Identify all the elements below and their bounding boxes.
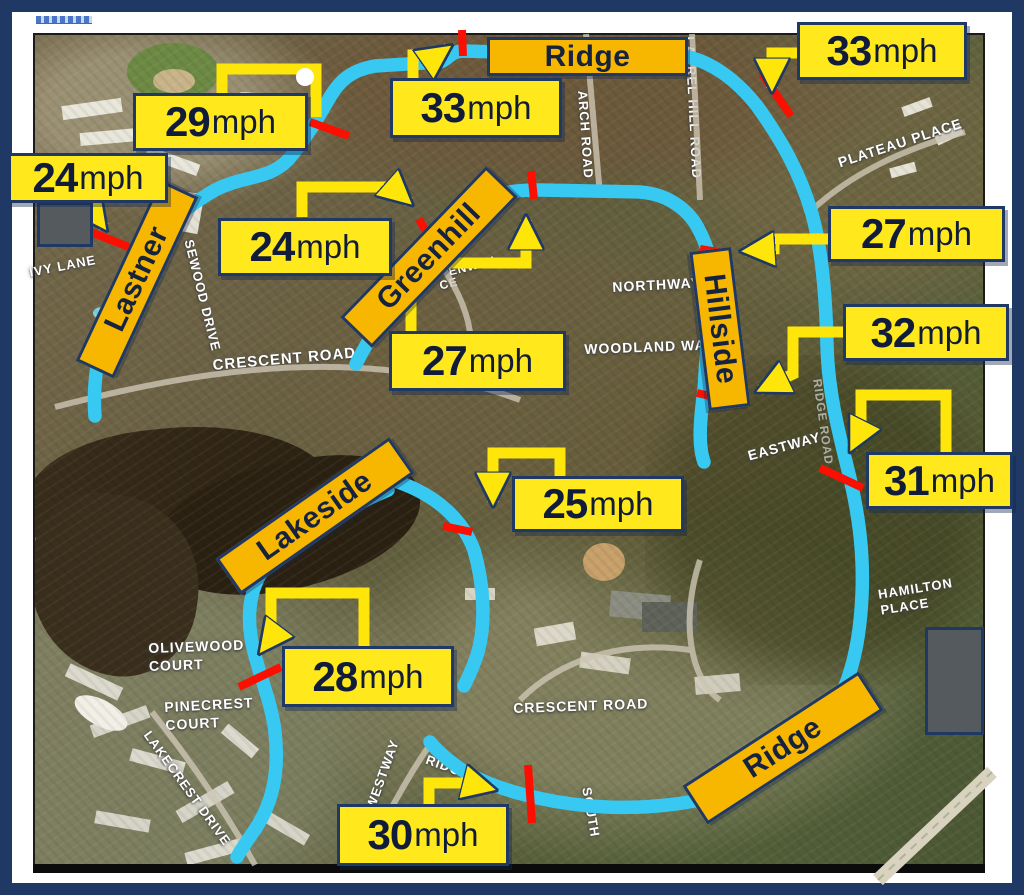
speed-unit: mph xyxy=(589,485,653,523)
speed-value: 33 xyxy=(421,84,466,132)
speed-callout-29: 29mph xyxy=(133,93,308,151)
street-sign-ridge-north: Ridge xyxy=(487,37,688,76)
speed-unit: mph xyxy=(931,462,995,500)
speed-value: 32 xyxy=(871,309,916,357)
callout-connectors xyxy=(91,48,946,804)
speed-study-map: IVY LANE SEWOOD DRIVE CRESCENT ROAD NORT… xyxy=(0,0,1024,895)
speed-unit: mph xyxy=(917,314,981,352)
speed-callout-33-north: 33mph xyxy=(390,78,562,138)
speed-value: 28 xyxy=(313,653,358,701)
speed-unit: mph xyxy=(79,159,143,197)
speed-value: 24 xyxy=(33,154,78,202)
speed-unit: mph xyxy=(908,215,972,253)
speed-callout-24-greenhill: 24mph xyxy=(218,218,392,276)
speed-value: 24 xyxy=(250,223,295,271)
speed-callout-28: 28mph xyxy=(282,646,454,707)
speed-unit: mph xyxy=(469,342,533,380)
speed-unit: mph xyxy=(873,32,937,70)
speed-callout-31: 31mph xyxy=(866,452,1013,509)
speed-callout-33-northeast: 33mph xyxy=(797,22,967,80)
speed-unit: mph xyxy=(359,658,423,696)
gray-box xyxy=(925,627,984,735)
speed-callout-27-center: 27mph xyxy=(389,331,566,391)
speed-value: 33 xyxy=(827,27,872,75)
speed-value: 27 xyxy=(422,337,467,385)
speed-unit: mph xyxy=(467,89,531,127)
speed-unit: mph xyxy=(212,103,276,141)
speed-callout-32: 32mph xyxy=(843,304,1009,361)
route-path xyxy=(94,51,862,857)
speed-unit: mph xyxy=(296,228,360,266)
speed-value: 27 xyxy=(861,210,906,258)
survey-dot xyxy=(296,68,314,86)
speed-value: 25 xyxy=(543,480,588,528)
speed-value: 30 xyxy=(368,811,413,859)
speed-callout-30: 30mph xyxy=(337,804,509,866)
sign-label: Ridge xyxy=(545,40,631,74)
speed-unit: mph xyxy=(414,816,478,854)
speed-callout-24-west: 24mph xyxy=(8,153,168,203)
speed-callout-25: 25mph xyxy=(512,476,684,532)
speed-value: 29 xyxy=(165,98,210,146)
speed-value: 31 xyxy=(884,457,929,505)
gray-box xyxy=(37,202,93,247)
speed-callout-27-hillside: 27mph xyxy=(828,206,1005,262)
